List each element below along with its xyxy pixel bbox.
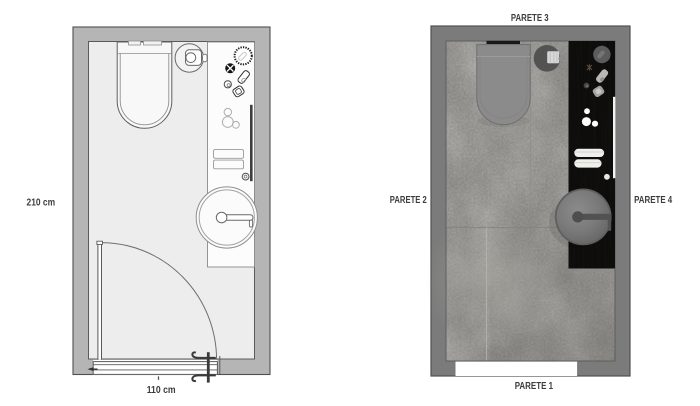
- svg-text:PARETE 2: PARETE 2: [390, 195, 427, 206]
- svg-text:110 cm: 110 cm: [147, 385, 176, 396]
- svg-text:PARETE 1: PARETE 1: [515, 381, 554, 392]
- svg-text:210 cm: 210 cm: [27, 198, 56, 209]
- svg-text:PARETE 3: PARETE 3: [511, 13, 549, 24]
- svg-text:PARETE 4: PARETE 4: [634, 195, 672, 206]
